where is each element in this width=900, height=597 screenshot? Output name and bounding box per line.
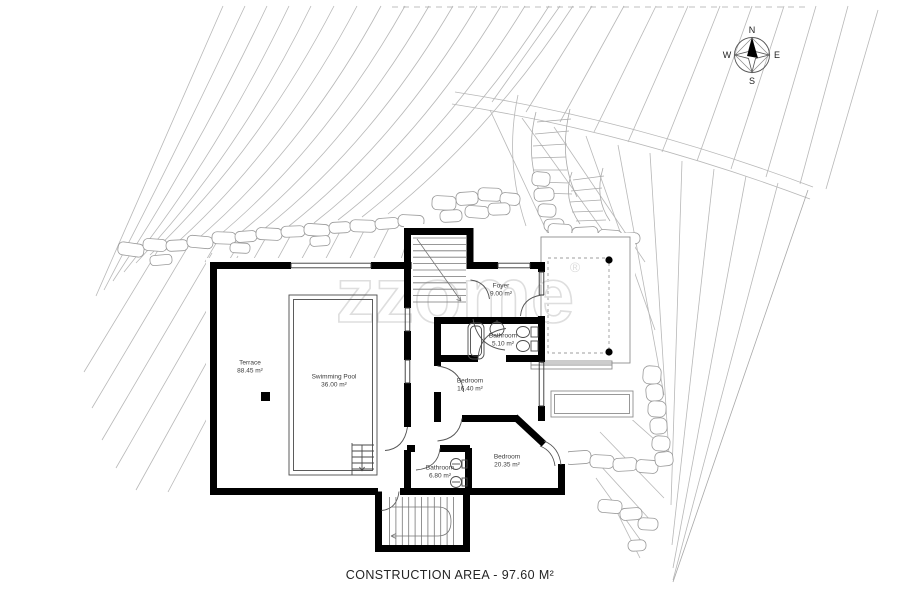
room-label-swimming-pool: Swimming Pool 36.00 m² (312, 374, 357, 391)
room-label-bedroom-1: Bedroom 16.40 m² (457, 378, 483, 395)
compass-east-label: E (774, 50, 780, 60)
room-area: 6.80 m² (426, 473, 454, 481)
room-label-bathroom-upper: Bathroom 5.10 m² (489, 333, 517, 350)
room-name: Terrace (237, 360, 263, 368)
construction-area-caption: CONSTRUCTION AREA - 97.60 M² (0, 568, 900, 582)
compass-north-label: N (749, 25, 756, 35)
room-area: 5.10 m² (489, 341, 517, 349)
floor-plan-drawing: zzome ® (0, 0, 900, 597)
room-label-bedroom-2: Bedroom 20.35 m² (494, 454, 520, 471)
room-name: Bedroom (494, 454, 520, 462)
pergola-post (605, 256, 612, 263)
room-area: 88.45 m² (237, 368, 263, 376)
room-name: Bathroom (489, 333, 517, 341)
room-area: 20.35 m² (494, 462, 520, 470)
pergola-post (605, 348, 612, 355)
terrace-column (261, 392, 270, 401)
room-name: Foyer (490, 283, 512, 291)
room-label-foyer: Foyer 9.00 m² (490, 283, 512, 300)
room-label-terrace: Terrace 88.45 m² (237, 360, 263, 377)
room-label-bathroom-lower: Bathroom 6.80 m² (426, 465, 454, 482)
compass-west-label: W (723, 50, 732, 60)
floor-plan-page: zzome ® (0, 0, 900, 597)
compass-south-label: S (749, 76, 755, 86)
watermark-registered: ® (570, 259, 581, 275)
compass-rose: N E S W (723, 25, 780, 86)
room-name: Bedroom (457, 378, 483, 386)
room-name: Swimming Pool (312, 374, 357, 382)
room-name: Bathroom (426, 465, 454, 473)
room-area: 9.00 m² (490, 291, 512, 299)
room-area: 36.00 m² (312, 382, 357, 390)
room-area: 16.40 m² (457, 386, 483, 394)
